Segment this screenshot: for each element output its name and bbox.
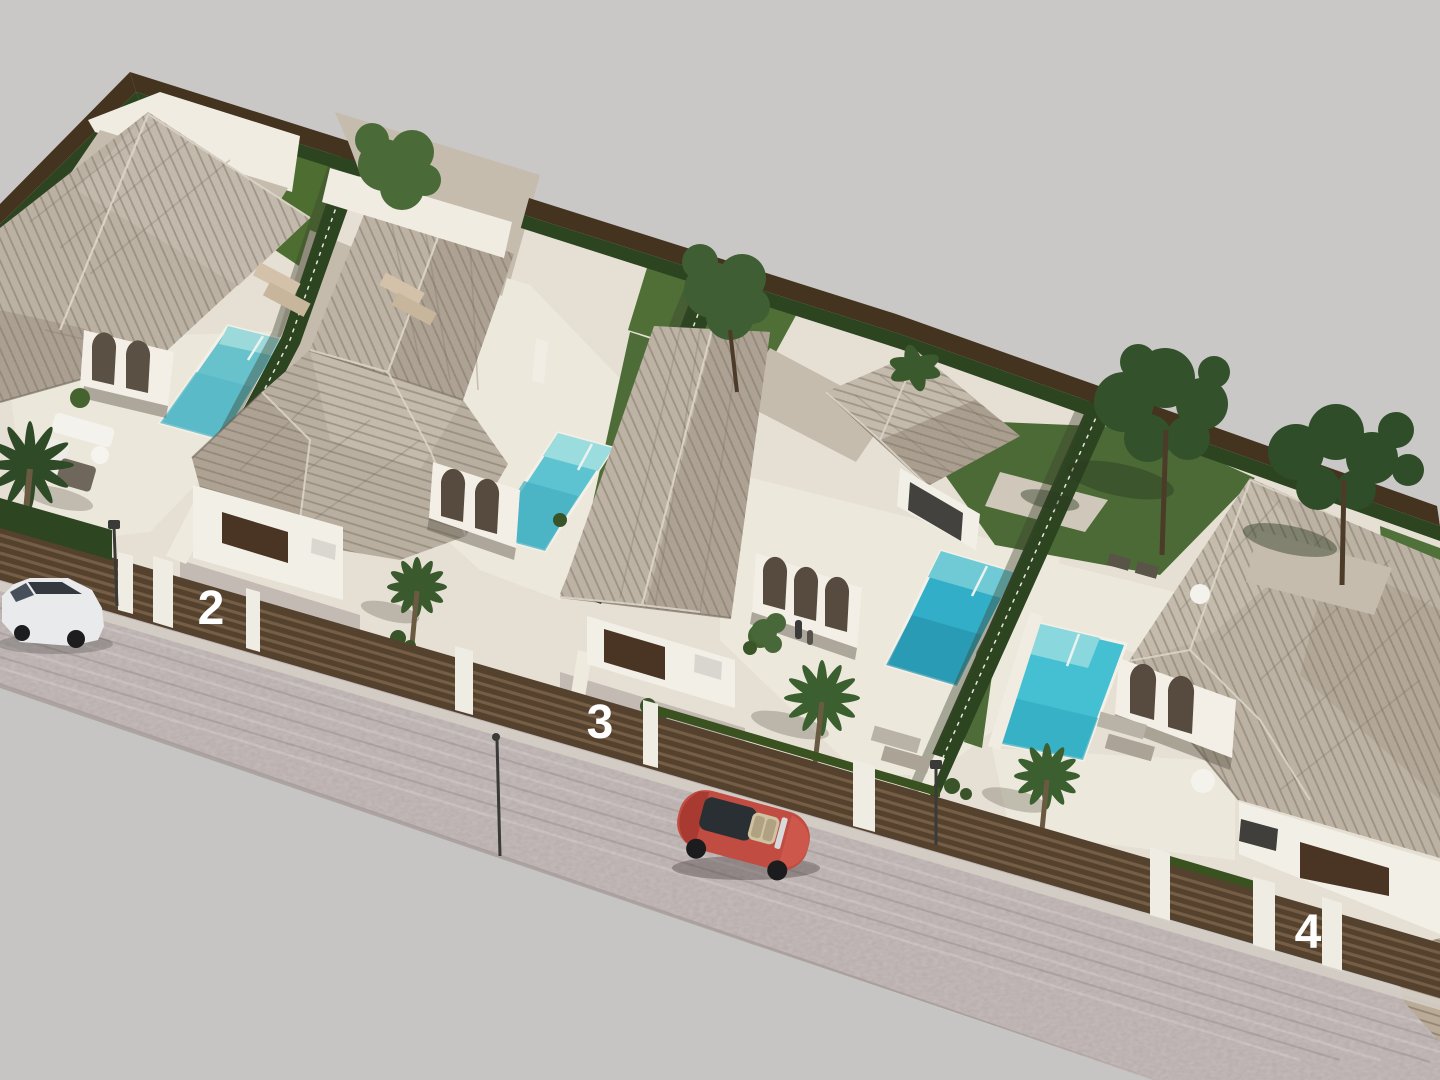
- svg-text:4: 4: [1295, 906, 1322, 959]
- svg-text:2: 2: [198, 582, 225, 635]
- svg-text:3: 3: [587, 696, 614, 749]
